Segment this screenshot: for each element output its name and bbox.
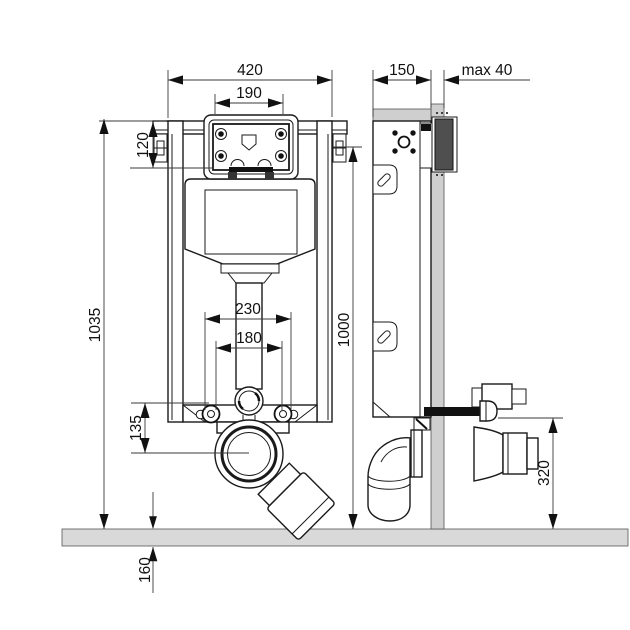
dim-arrow — [99, 514, 108, 529]
dim-arrow — [548, 418, 557, 433]
dim-installation-height: 1000 — [333, 147, 362, 529]
dim-label-below-floor: 160 — [137, 557, 154, 583]
dim-arrow — [276, 314, 291, 323]
dim-arrow — [416, 75, 431, 84]
dim-arrow — [317, 75, 332, 84]
dim-arrow — [373, 75, 388, 84]
rod-nut — [480, 401, 497, 421]
panel-bottom-strip — [229, 167, 273, 172]
right-wall-clamp — [333, 134, 346, 162]
dim-arrow — [205, 314, 220, 323]
elbow-flange — [411, 430, 422, 477]
keyhole-slot-lower — [373, 322, 397, 351]
dim-arrow — [215, 98, 230, 107]
dim-label-plate-opening: 190 — [236, 85, 262, 102]
dim-label-installation-height: 1000 — [336, 312, 353, 347]
floor-slab — [62, 529, 628, 546]
drain-elbow — [368, 418, 430, 521]
floor-level-marker — [149, 492, 157, 529]
dim-label-fixing-inner: 180 — [236, 330, 262, 347]
dim-arrow — [348, 147, 357, 162]
wall-bracket-block — [435, 119, 453, 170]
dim-label-connection-height: 320 — [536, 460, 553, 486]
dim-arrow — [267, 343, 282, 352]
keyhole-slot-upper — [373, 165, 397, 194]
dim-label-frame-height: 1035 — [87, 308, 104, 342]
dim-arrow — [548, 514, 557, 529]
dim-arrow — [268, 98, 283, 107]
dim-frame-height: 1035 — [87, 119, 166, 529]
cistern-tank — [185, 179, 315, 283]
dim-label-max-wall-offset: max 40 — [462, 62, 513, 79]
front-view — [153, 115, 347, 540]
dim-max-wall-offset: max 40 — [444, 62, 530, 85]
dim-plate-opening-width: 190 — [215, 85, 283, 114]
side-view — [368, 104, 538, 529]
frame-right-rail — [317, 121, 332, 422]
frame-left-rail — [168, 121, 183, 422]
dim-label-fixing-outer: 230 — [235, 301, 261, 318]
dim-label-frame-width: 420 — [237, 62, 263, 79]
dim-arrow — [348, 514, 357, 529]
dim-below-floor-depth: 160 — [137, 547, 157, 593]
dim-arrow — [216, 343, 231, 352]
dim-arrow — [168, 75, 183, 84]
technical-drawing-page: 420 190 150 max 40 — [0, 0, 630, 630]
dim-label-top-section: 120 — [135, 132, 152, 158]
drain-outlet-circle — [215, 420, 283, 488]
dim-arrow — [444, 75, 459, 84]
panel-tab-left — [228, 172, 237, 179]
bracket-arm-clip — [421, 124, 431, 131]
panel-tab-right — [265, 172, 274, 179]
dim-label-outlet-height: 135 — [128, 415, 145, 441]
top-rail-section — [373, 109, 431, 121]
fixing-rod — [424, 407, 480, 416]
technical-drawing-canvas: 420 190 150 max 40 — [0, 0, 630, 630]
access-panel — [204, 115, 298, 179]
dim-label-frame-depth: 150 — [389, 62, 415, 79]
outlet-horn — [474, 427, 538, 481]
dim-arrow — [149, 516, 157, 529]
